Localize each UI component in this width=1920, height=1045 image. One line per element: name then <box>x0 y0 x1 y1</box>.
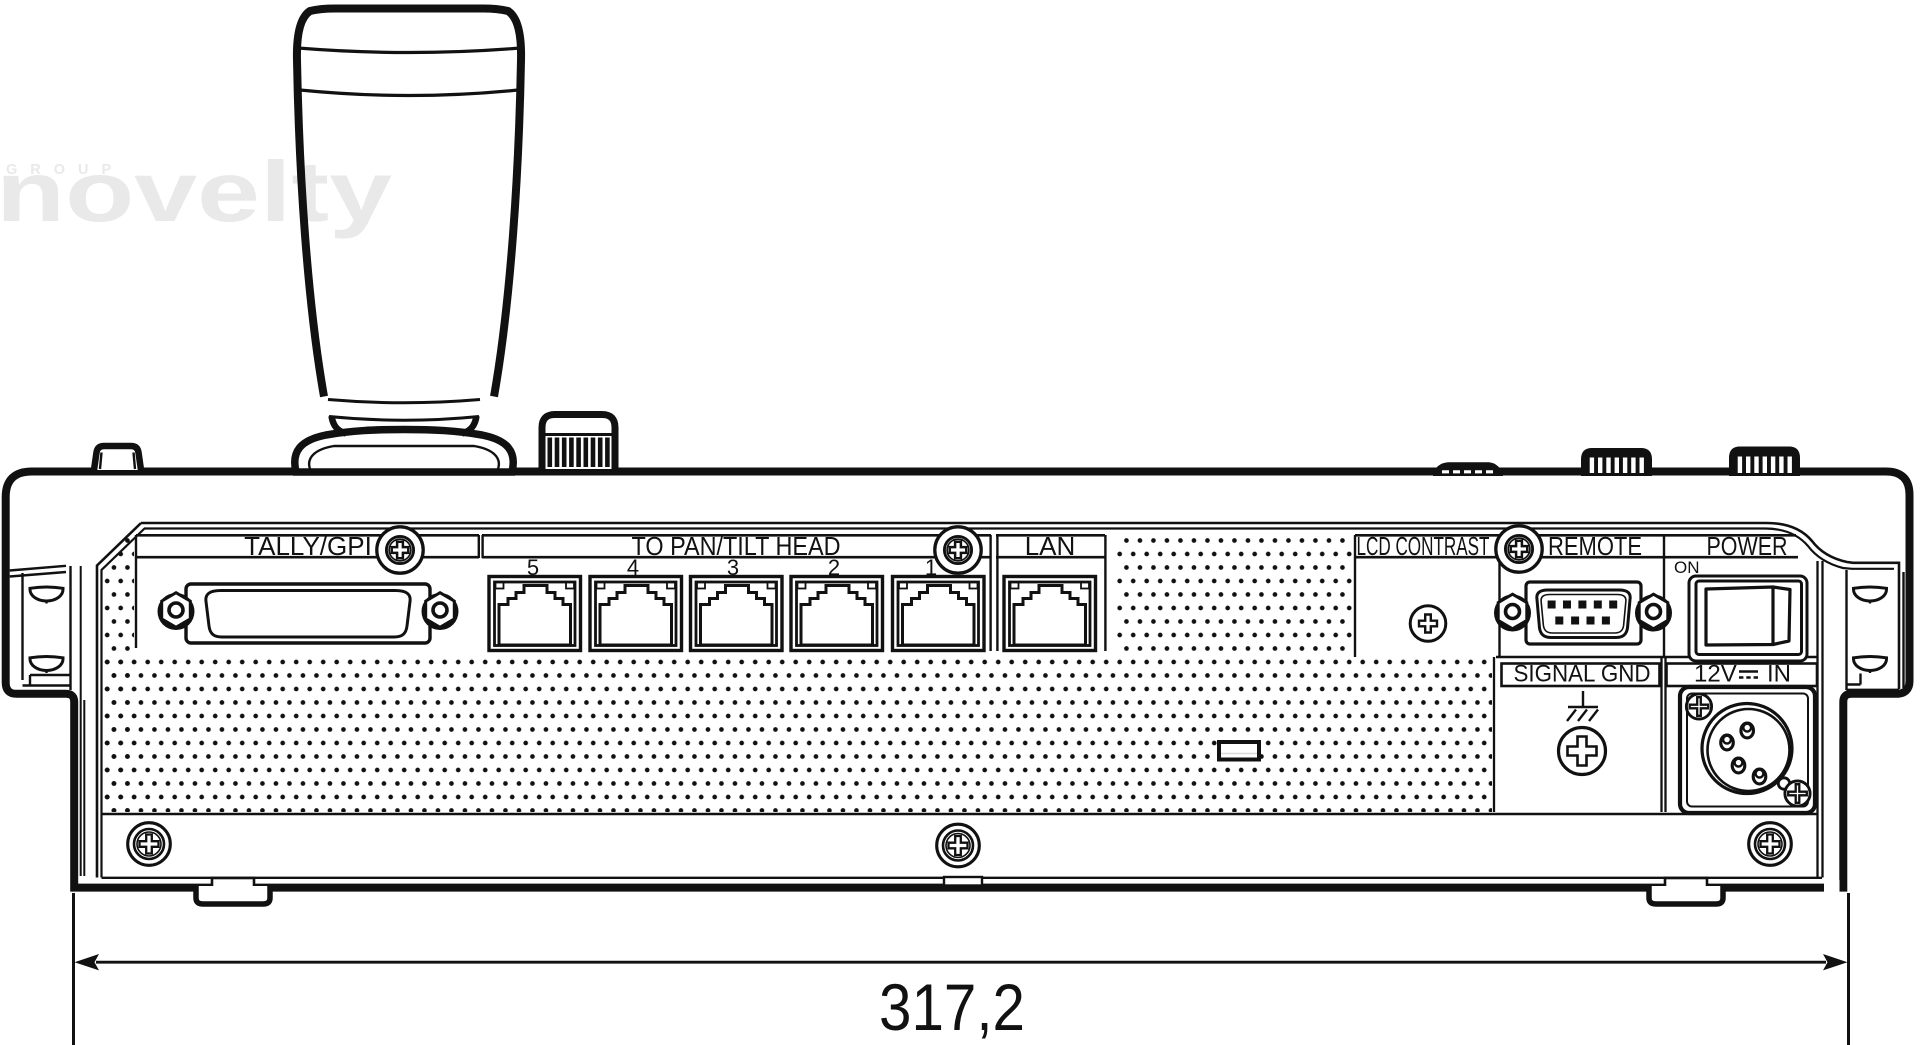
svg-text:IN: IN <box>1767 661 1791 688</box>
svg-text:LCD CONTRAST: LCD CONTRAST <box>1357 531 1490 561</box>
svg-text:317,2: 317,2 <box>879 970 1025 1044</box>
svg-text:12V: 12V <box>1694 661 1737 688</box>
svg-text:ON: ON <box>1674 558 1700 577</box>
svg-text:TALLY/GPI: TALLY/GPI <box>244 531 372 561</box>
svg-text:POWER: POWER <box>1707 531 1788 561</box>
svg-text:novelty: novelty <box>0 145 392 240</box>
svg-text:LAN: LAN <box>1025 531 1076 561</box>
svg-text:SIGNAL GND: SIGNAL GND <box>1514 661 1651 688</box>
svg-text:REMOTE: REMOTE <box>1548 531 1642 561</box>
